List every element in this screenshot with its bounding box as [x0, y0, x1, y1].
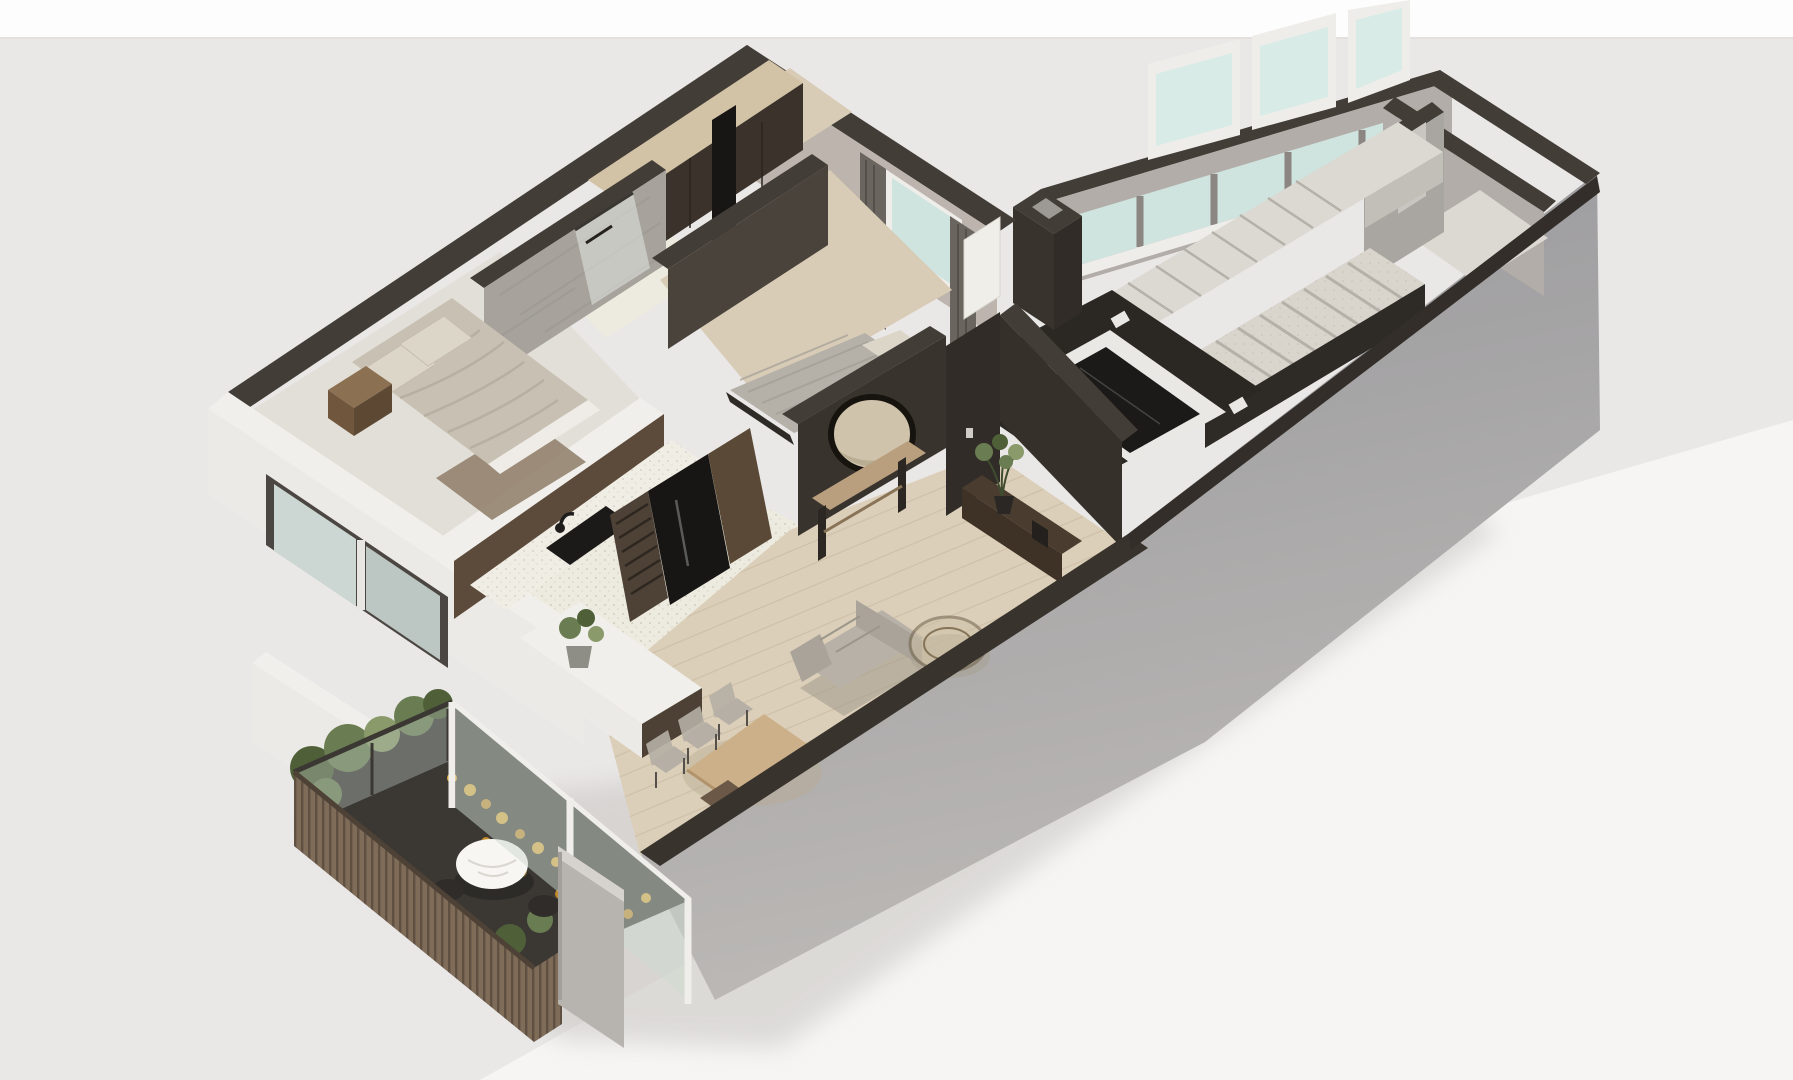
- junction-column: [1013, 189, 1082, 330]
- light-switch: [966, 428, 973, 438]
- island-plant-leaf: [577, 609, 595, 627]
- plant-leaf: [975, 443, 993, 461]
- island-plant-pot: [566, 646, 592, 668]
- console-leg-right: [898, 457, 906, 513]
- facade-window-1-mullion: [357, 540, 365, 610]
- column-se-face: [1054, 216, 1082, 330]
- outdoor-chair-2: [528, 895, 560, 917]
- floor-plan-render: [0, 0, 1793, 1080]
- isometric-apartment-svg: [0, 0, 1793, 1080]
- top-strip-divider: [0, 37, 1793, 39]
- plant-leaf: [999, 455, 1013, 469]
- island-plant-leaf: [588, 626, 604, 642]
- plant-leaf: [992, 434, 1008, 450]
- top-white-strip: [0, 0, 1793, 37]
